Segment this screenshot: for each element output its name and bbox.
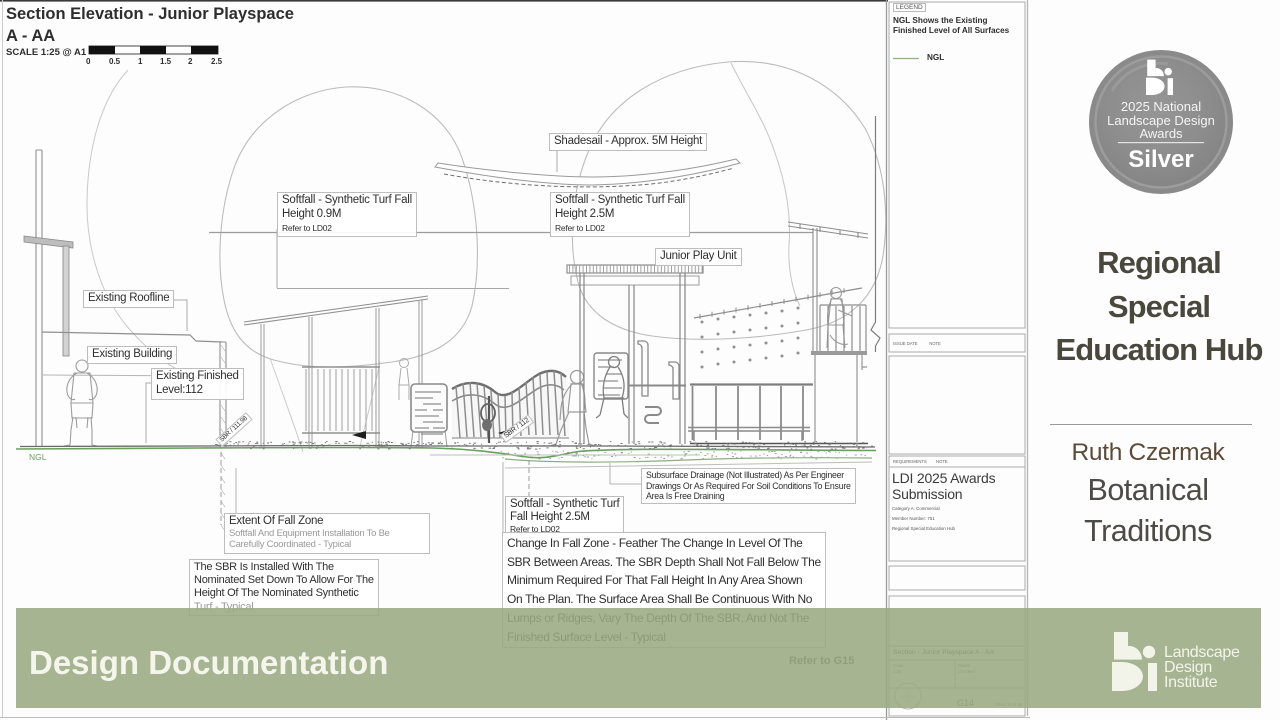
svg-text:Silver: Silver [1128, 146, 1193, 173]
svg-text:2025 National: 2025 National [1121, 99, 1201, 114]
svg-text:Awards: Awards [1139, 126, 1183, 141]
